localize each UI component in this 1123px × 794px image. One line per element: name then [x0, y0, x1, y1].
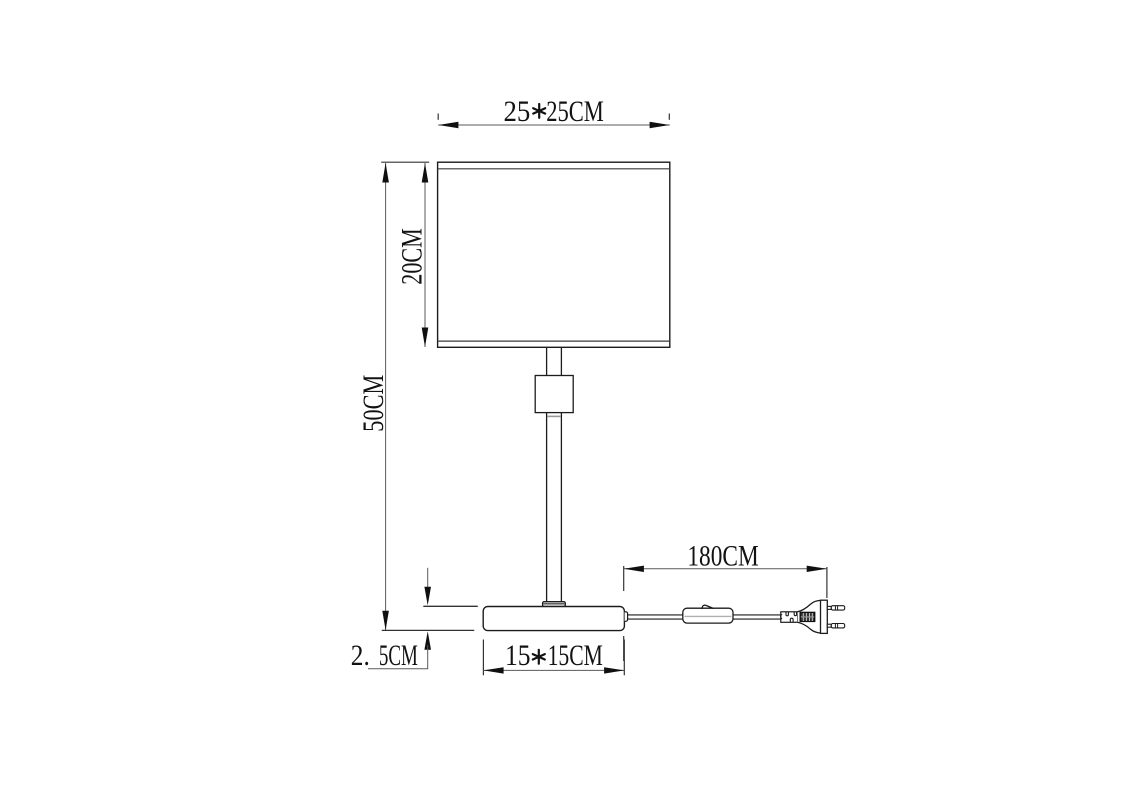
svg-text:15: 15	[505, 640, 531, 672]
svg-text:2.: 2.	[351, 640, 370, 672]
svg-text:20CM: 20CM	[396, 228, 428, 285]
svg-text:25: 25	[504, 96, 531, 128]
svg-text:25CM: 25CM	[546, 96, 604, 128]
svg-text:180CM: 180CM	[687, 541, 758, 573]
svg-text:5CM: 5CM	[379, 640, 418, 672]
svg-text:50CM: 50CM	[358, 375, 390, 432]
svg-text:15CM: 15CM	[548, 640, 603, 672]
